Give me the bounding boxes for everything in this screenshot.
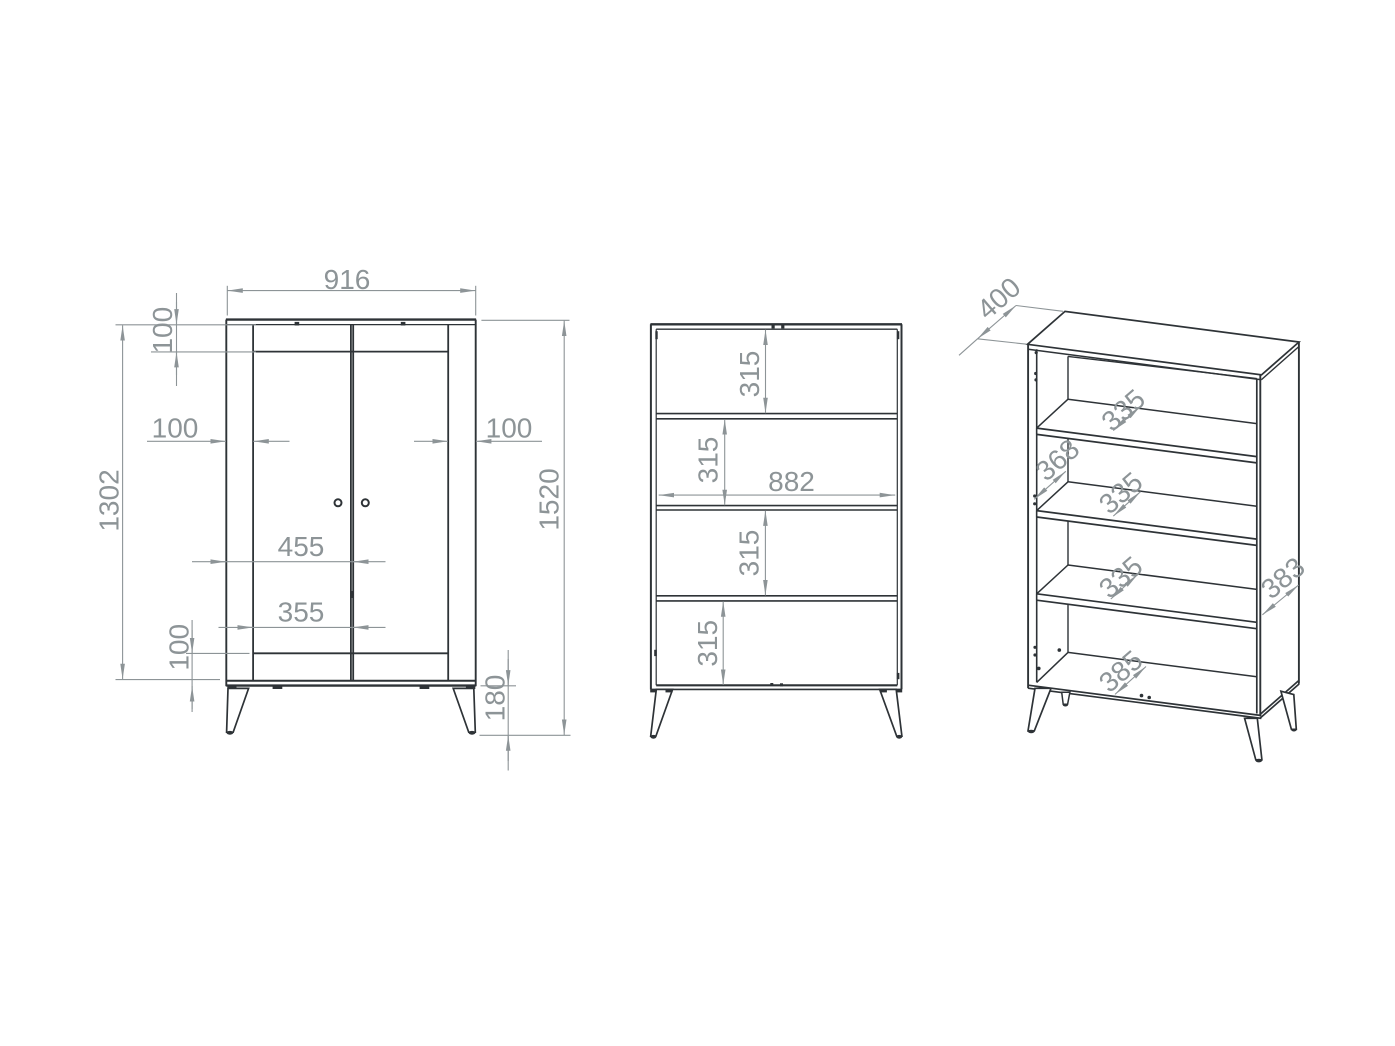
svg-text:882: 882	[768, 466, 815, 497]
svg-text:315: 315	[734, 530, 765, 577]
svg-text:1520: 1520	[534, 468, 565, 530]
svg-text:180: 180	[480, 675, 511, 722]
svg-text:100: 100	[147, 307, 178, 354]
svg-text:315: 315	[692, 620, 723, 667]
svg-text:368: 368	[1030, 433, 1086, 487]
svg-text:400: 400	[971, 271, 1027, 325]
svg-text:100: 100	[486, 413, 533, 444]
svg-text:315: 315	[734, 351, 765, 398]
svg-text:100: 100	[164, 624, 195, 671]
svg-text:383: 383	[1255, 551, 1311, 605]
svg-text:355: 355	[278, 597, 325, 628]
svg-text:1302: 1302	[94, 469, 125, 531]
svg-text:916: 916	[324, 264, 371, 295]
svg-text:455: 455	[278, 531, 325, 562]
svg-text:315: 315	[693, 437, 724, 484]
svg-text:100: 100	[152, 413, 199, 444]
